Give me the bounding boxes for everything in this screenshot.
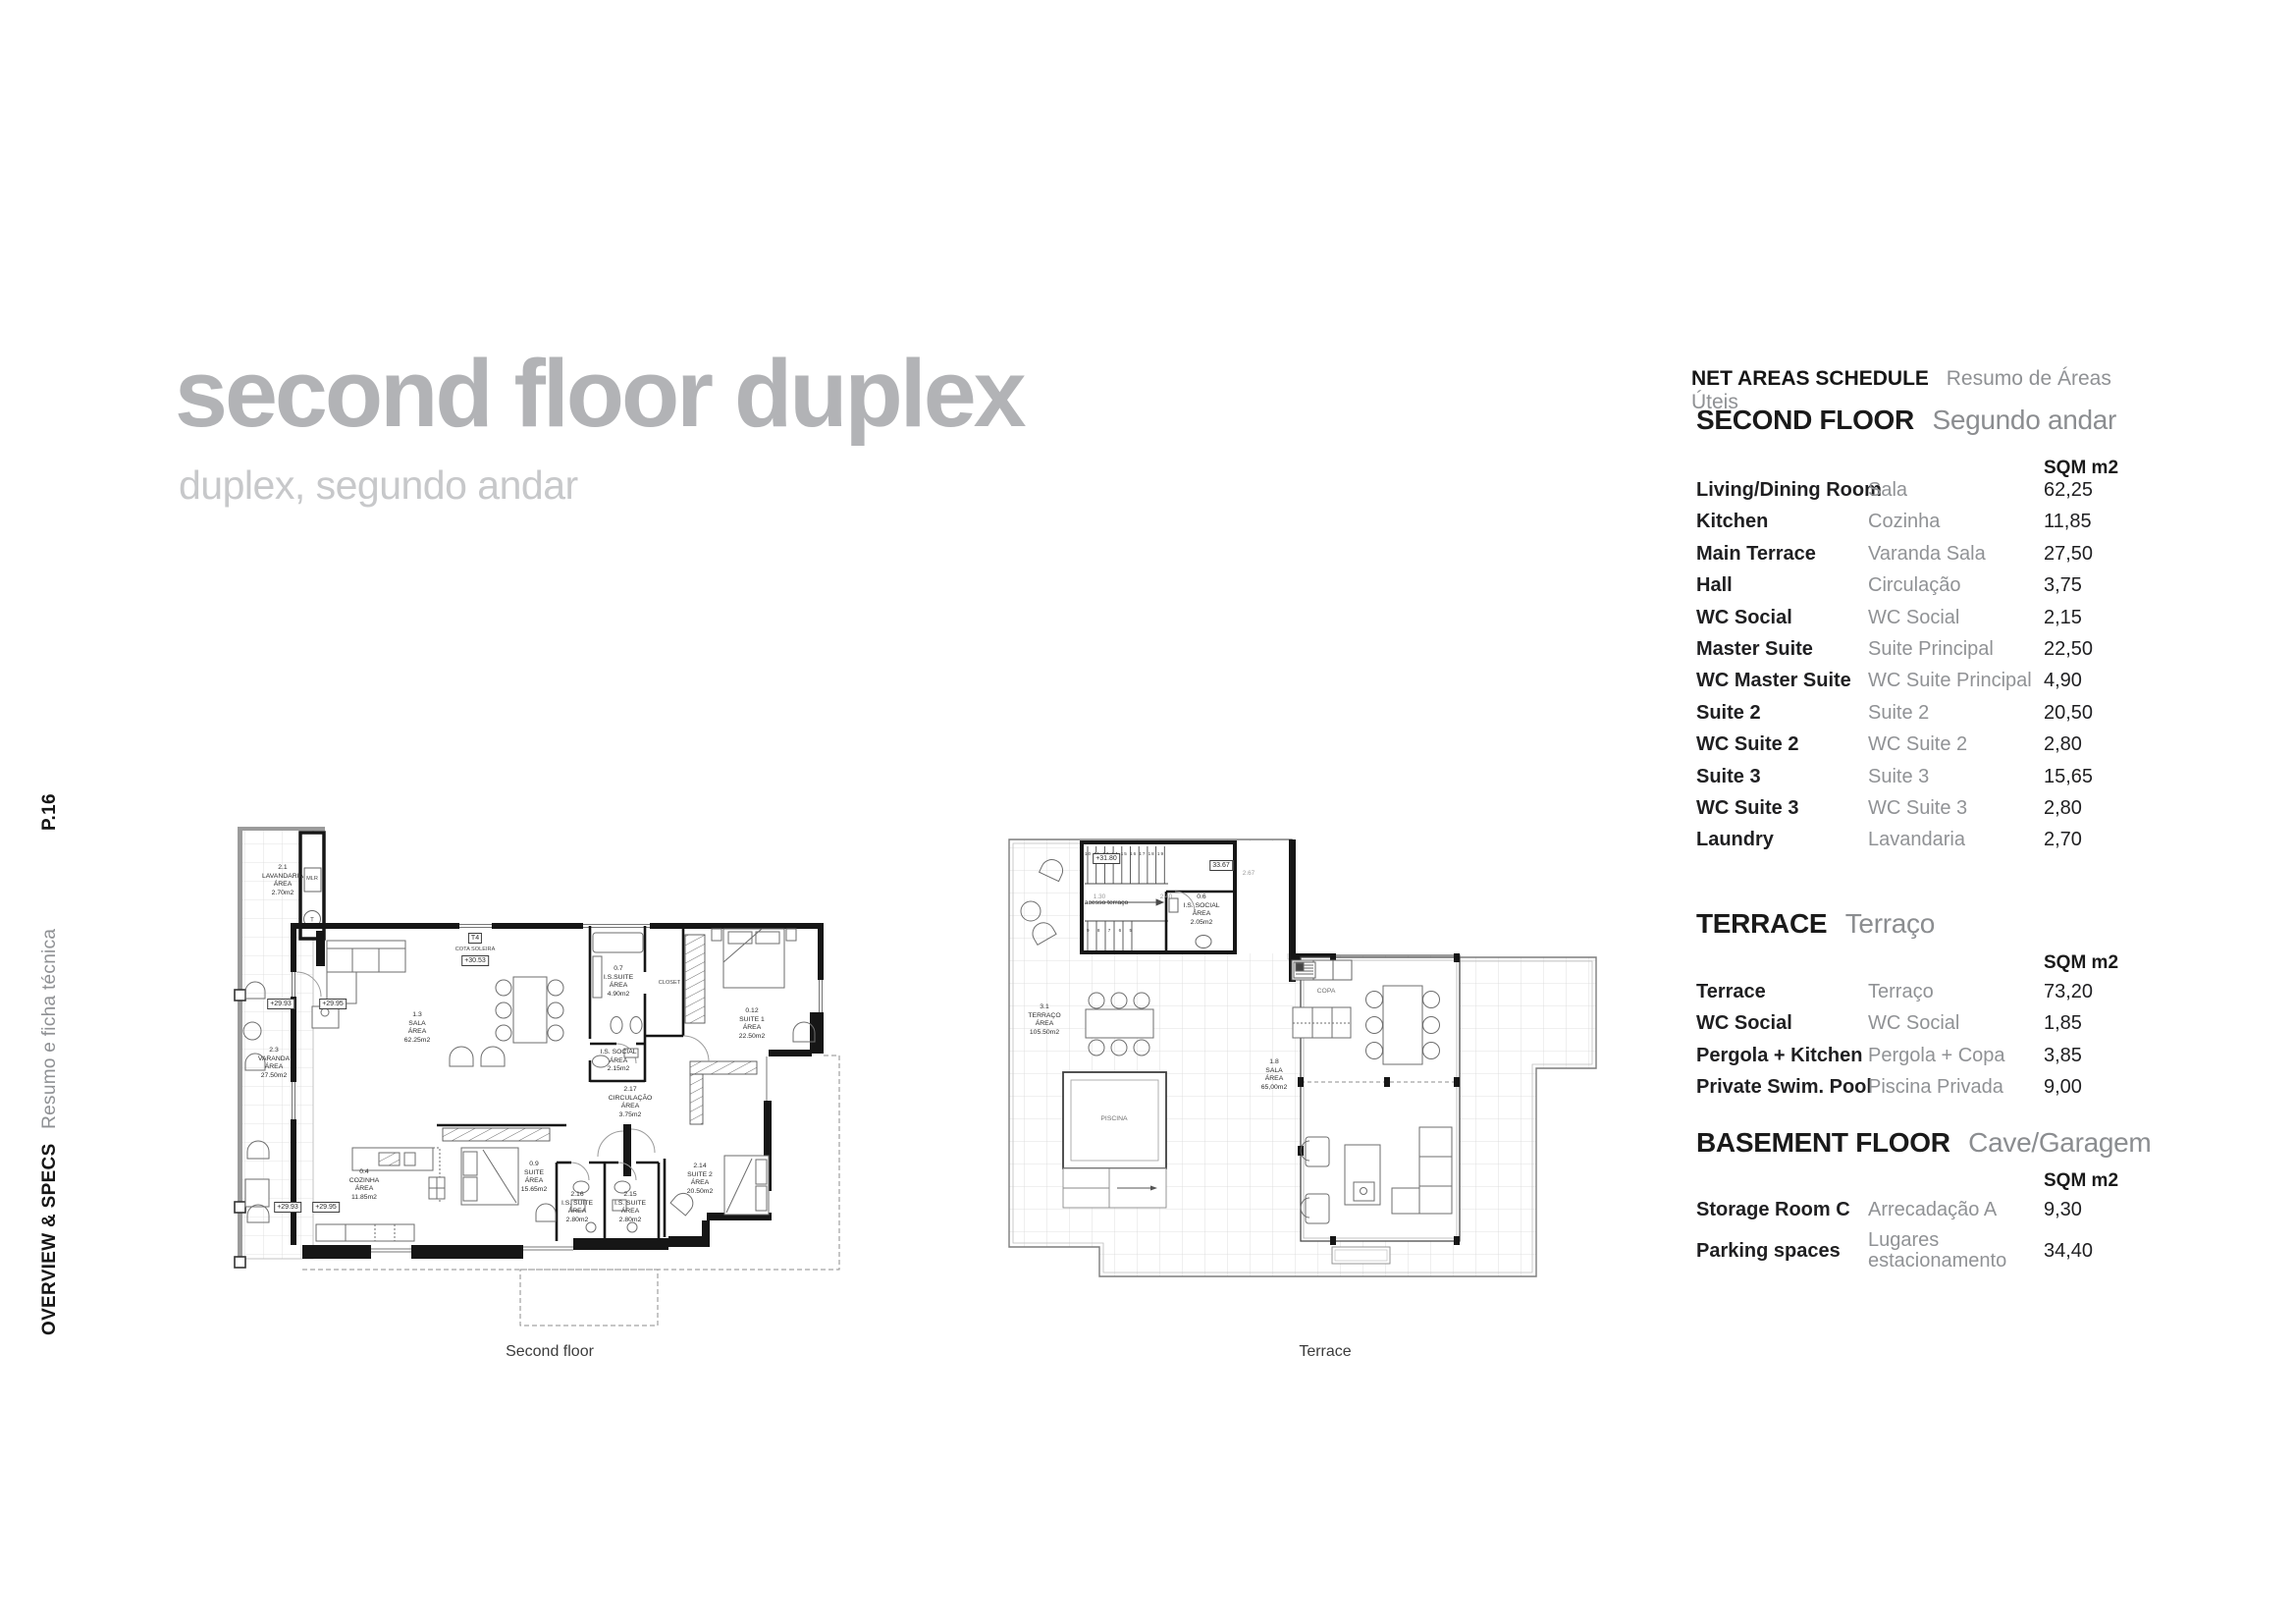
table-row: Private Swim. PoolPiscina Privada9,00 — [1696, 1076, 2158, 1108]
floor-plan-second: T — [226, 825, 874, 1375]
row-sqm: 3,75 — [2044, 574, 2082, 597]
row-pt: Lavandaria — [1868, 829, 1965, 851]
row-pt: Terraço — [1868, 981, 1934, 1003]
label-acesso-terraco: acesso terraço — [1085, 899, 1129, 908]
sofa — [1419, 1127, 1452, 1214]
marker-t4: T4 — [468, 933, 482, 944]
sidebar-section-en: OVERVIEW & SPECS — [39, 1143, 60, 1335]
table-row: Pergola + KitchenPergola + Copa3,85 — [1696, 1045, 2158, 1076]
row-pt: Varanda Sala — [1868, 543, 1986, 566]
hall-wall-stub — [623, 1124, 631, 1176]
room-label-cozinha: 0.4 COZINHA ÁREA 11.85m2 — [349, 1168, 380, 1203]
dim-label: 2.40 — [1160, 893, 1172, 901]
table-row: Suite 3Suite 315,65 — [1696, 766, 2158, 797]
table-row: HallCirculação3,75 — [1696, 574, 2158, 606]
table-row: WC Suite 2WC Suite 22,80 — [1696, 733, 2158, 765]
page-subtitle: duplex, segundo andar — [179, 465, 578, 506]
row-sqm: 3,85 — [2044, 1045, 2082, 1067]
row-pt: WC Social — [1868, 1012, 1959, 1035]
basement-rows: Storage Room CArrecadação A9,30 Parking … — [1696, 1199, 2158, 1277]
heading-pt: Terraço — [1845, 908, 1935, 939]
sqm-header: SQM m2 — [2044, 952, 2118, 974]
row-pt: Suite Principal — [1868, 638, 1994, 661]
row-en: Storage Room C — [1696, 1199, 1850, 1221]
row-en: Suite 3 — [1696, 766, 1761, 788]
table-row: Suite 2Suite 220,50 — [1696, 702, 2158, 733]
stair-landing — [1235, 841, 1289, 953]
label-mlr: MLR — [306, 876, 318, 883]
planter — [1332, 1247, 1390, 1264]
row-en: Pergola + Kitchen — [1696, 1045, 1863, 1067]
row-sqm: 2,80 — [2044, 797, 2082, 820]
terrace-rows: TerraceTerraço73,20 WC SocialWC Social1,… — [1696, 981, 2158, 1109]
room-label-suite2: 2.14 SUITE 2 ÁREA 20.50m2 — [687, 1163, 713, 1197]
table-row: WC Master SuiteWC Suite Principal4,90 — [1696, 670, 2158, 701]
stair-numbers-bottom: 9 8 7 6 5 — [1087, 928, 1132, 933]
row-sqm: 9,30 — [2044, 1199, 2082, 1221]
second-floor-rows: Living/Dining RoomSala62,25 KitchenCozin… — [1696, 479, 2158, 861]
room-label-is-suite-216: 2.16 I.S. SUITE ÁREA 2.80m2 — [561, 1191, 593, 1225]
row-pt: Lugares estacionamento — [1868, 1230, 2006, 1272]
pool — [1063, 1072, 1166, 1208]
heading-pt: Cave/Garagem — [1968, 1127, 2151, 1158]
marker-cota: 33.67 — [1209, 860, 1233, 871]
row-en: Hall — [1696, 574, 1733, 597]
heading-en: SECOND FLOOR — [1696, 405, 1914, 435]
heading-en: TERRACE — [1696, 908, 1827, 939]
row-sqm: 15,65 — [2044, 766, 2093, 788]
sidebar-section-label: OVERVIEW & SPECS Resumo e ficha técnica — [39, 929, 61, 1335]
section-heading-terrace: TERRACE Terraço — [1696, 908, 1935, 940]
table-row: WC SocialWC Social1,85 — [1696, 1012, 2158, 1044]
row-pt: Circulação — [1868, 574, 1960, 597]
row-en: WC Suite 2 — [1696, 733, 1798, 756]
section-heading-second-floor: SECOND FLOOR Segundo andar — [1696, 405, 2116, 436]
sqm-header: SQM m2 — [2044, 458, 2118, 479]
table-row: Living/Dining RoomSala62,25 — [1696, 479, 2158, 511]
table-row: KitchenCozinha11,85 — [1696, 511, 2158, 542]
heading-en: BASEMENT FLOOR — [1696, 1127, 1950, 1158]
row-sqm: 4,90 — [2044, 670, 2082, 692]
row-en: WC Master Suite — [1696, 670, 1851, 692]
row-pt: Cozinha — [1868, 511, 1940, 533]
row-en: Living/Dining Room — [1696, 479, 1882, 502]
row-en: Terrace — [1696, 981, 1766, 1003]
row-en: WC Suite 3 — [1696, 797, 1798, 820]
sofa — [327, 941, 405, 972]
room-label-piscina: PISCINA — [1100, 1115, 1127, 1124]
room-label-terraco: 3.1 TERRAÇO ÁREA 105.50m2 — [1028, 1003, 1060, 1038]
page-number: P.16 — [39, 793, 61, 831]
row-pt: Pergola + Copa — [1868, 1045, 2005, 1067]
heading-pt: Segundo andar — [1932, 405, 2116, 435]
row-en: Parking spaces — [1696, 1240, 1841, 1263]
row-pt: WC Suite 2 — [1868, 733, 1967, 756]
row-en: Kitchen — [1696, 511, 1768, 533]
row-en: Master Suite — [1696, 638, 1813, 661]
row-sqm: 9,00 — [2044, 1076, 2082, 1099]
row-en: Laundry — [1696, 829, 1774, 851]
plan-caption-second: Second floor — [226, 1343, 893, 1361]
room-label-circulacao: 2.17 CIRCULAÇÃO ÁREA 3.75m2 — [609, 1086, 653, 1120]
svg-text:T: T — [310, 918, 314, 924]
row-pt: Arrecadação A — [1868, 1199, 1997, 1221]
room-label-closet: CLOSET — [659, 980, 680, 987]
room-label-is-suite: 0.7 I.S.SUITE ÁREA 4.90m2 — [604, 965, 633, 1000]
table-row: Main TerraceVaranda Sala27,50 — [1696, 543, 2158, 574]
marker-cota-value: +30.53 — [461, 955, 489, 966]
page-title: second floor duplex — [175, 346, 1024, 441]
label-cota-soleira: COTA SOLEIRA — [455, 947, 496, 953]
row-en: Main Terrace — [1696, 543, 1816, 566]
sqm-header: SQM m2 — [2044, 1170, 2118, 1192]
row-sqm: 11,85 — [2044, 511, 2092, 533]
room-label-suite1: 0.12 SUITE 1 ÁREA 22.50m2 — [739, 1007, 765, 1042]
section-heading-basement: BASEMENT FLOOR Cave/Garagem — [1696, 1127, 2151, 1159]
row-sqm: 62,25 — [2044, 479, 2093, 502]
sala-dining-table — [1383, 986, 1422, 1064]
row-pt: Sala — [1868, 479, 1907, 502]
sidebar-section-pt: Resumo e ficha técnica — [39, 929, 60, 1129]
row-pt: Piscina Privada — [1868, 1076, 2003, 1099]
room-label-varanda: 2.3 VARANDA ÁREA 27.50m2 — [258, 1047, 290, 1081]
row-sqm: 34,40 — [2044, 1240, 2093, 1263]
row-sqm: 27,50 — [2044, 543, 2093, 566]
row-pt: Suite 2 — [1868, 702, 1929, 725]
elevation-marker: +29.93 — [274, 1202, 301, 1213]
table-row: WC Suite 3WC Suite 32,80 — [1696, 797, 2158, 829]
row-sqm: 2,80 — [2044, 733, 2082, 756]
brochure-page: P.16 OVERVIEW & SPECS Resumo e ficha téc… — [0, 0, 2296, 1624]
row-pt: WC Suite 3 — [1868, 797, 1967, 820]
row-pt: WC Social — [1868, 607, 1959, 629]
row-en: WC Social — [1696, 607, 1792, 629]
table-row: Parking spacesLugares estacionamento34,4… — [1696, 1230, 2158, 1277]
dim-label: 2.67 — [1243, 870, 1255, 878]
room-label-sala: 1.3 SALA ÁREA 62.25m2 — [404, 1011, 430, 1046]
room-label-lavandaria: 2.1 LAVANDARIA ÁREA 2.70m2 — [262, 864, 303, 898]
table-row: TerraceTerraço73,20 — [1696, 981, 2158, 1012]
room-label-suite3: 0.9 SUITE ÁREA 15.65m2 — [521, 1161, 547, 1195]
room-label-copa: COPA — [1317, 988, 1336, 997]
plan-caption-terrace: Terrace — [1001, 1343, 1708, 1361]
dining-table — [513, 977, 547, 1043]
floor-plan-terrace: 10 11 13 14 15 16 17 18 19 9 8 7 6 5 — [1001, 825, 1649, 1375]
room-label-wc-social: 0.6 I.S. SOCIAL ÁREA 2.05m2 — [1183, 893, 1219, 928]
room-label-is-suite-215: 2.15 I.S. SUITE ÁREA 2.80m2 — [614, 1191, 646, 1225]
elevation-marker: +31.80 — [1093, 853, 1120, 864]
row-pt: WC Suite Principal — [1868, 670, 2032, 692]
row-en: Private Swim. Pool — [1696, 1076, 1872, 1099]
room-label-is-social: I.S. SOCIAL ÁREA 2.15m2 — [600, 1049, 636, 1074]
row-sqm: 1,85 — [2044, 1012, 2082, 1035]
table-row: WC SocialWC Social2,15 — [1696, 607, 2158, 638]
row-sqm: 73,20 — [2044, 981, 2093, 1003]
row-sqm: 2,15 — [2044, 607, 2082, 629]
elevation-marker: +29.95 — [312, 1202, 340, 1213]
row-en: Suite 2 — [1696, 702, 1761, 725]
row-en: WC Social — [1696, 1012, 1792, 1035]
elevation-marker: +29.93 — [267, 999, 294, 1009]
row-sqm: 20,50 — [2044, 702, 2093, 725]
table-row: LaundryLavandaria2,70 — [1696, 829, 2158, 860]
net-areas-schedule: NET AREAS SCHEDULE Resumo de Áreas Úteis… — [1696, 365, 2158, 1347]
table-row: Storage Room CArrecadação A9,30 — [1696, 1199, 2158, 1230]
room-label-sala-terrace: 1.8 SALA ÁREA 65,00m2 — [1261, 1058, 1287, 1093]
row-sqm: 22,50 — [2044, 638, 2093, 661]
row-sqm: 2,70 — [2044, 829, 2082, 851]
copa-counter — [1292, 960, 1352, 980]
table-row: Master SuiteSuite Principal22,50 — [1696, 638, 2158, 670]
elevation-marker: +29.95 — [319, 999, 347, 1009]
schedule-title-en: NET AREAS SCHEDULE — [1691, 367, 1929, 390]
second-floor-plan-drawing: T — [226, 825, 874, 1345]
row-pt: Suite 3 — [1868, 766, 1929, 788]
